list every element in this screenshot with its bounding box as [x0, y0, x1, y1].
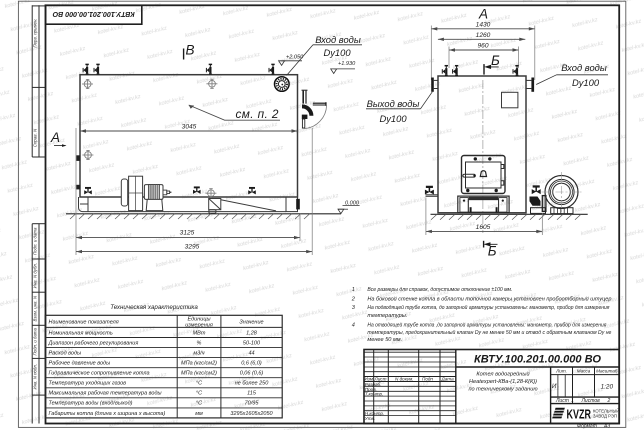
svg-text:В: В: [186, 43, 195, 58]
svg-text:Габариты котла (длина х ширина: Габариты котла (длина х ширина х высота): [49, 411, 166, 417]
svg-text:Перв. примен.: Перв. примен.: [32, 18, 37, 47]
svg-text:3295: 3295: [185, 243, 200, 250]
svg-text:KVZR: KVZR: [567, 407, 592, 421]
svg-text:°С: °С: [196, 401, 202, 407]
svg-text:Heatexpert-КВа-(1,28-К(К)): Heatexpert-КВа-(1,28-К(К)): [469, 379, 537, 385]
svg-text:Б: Б: [488, 244, 497, 259]
svg-text:Гидравлическое сопротивление к: Гидравлическое сопротивление котла: [49, 371, 150, 377]
svg-text:Максимальная рабочая температу: Максимальная рабочая температура воды: [49, 391, 162, 397]
svg-text:+2.050: +2.050: [286, 55, 304, 61]
svg-text:°С: °С: [196, 381, 202, 387]
svg-text:по техническому заданию: по техническому заданию: [468, 387, 538, 393]
svg-text:0,06 (0,6): 0,06 (0,6): [240, 371, 264, 377]
svg-text:Инв. N дубл.: Инв. N дубл.: [32, 263, 37, 288]
svg-text:+1.930: +1.930: [338, 61, 356, 67]
svg-text:Вход воды: Вход воды: [561, 62, 607, 73]
svg-text:Температура воды (вход/выход): Температура воды (вход/выход): [49, 401, 133, 407]
svg-text:Dy100: Dy100: [572, 77, 600, 88]
svg-text:температуры.: температуры.: [367, 313, 407, 319]
svg-text:Формат: Формат: [577, 423, 597, 429]
svg-text:КВТУ.100.201.00.000 ВО: КВТУ.100.201.00.000 ВО: [474, 353, 601, 365]
svg-text:Т.контр.: Т.контр.: [365, 392, 384, 397]
svg-text:Наименование показателя: Наименование показателя: [49, 320, 119, 326]
svg-text:115: 115: [247, 391, 257, 397]
svg-text:Рабочее давление воды: Рабочее давление воды: [49, 361, 111, 367]
svg-text:1:20: 1:20: [601, 383, 614, 390]
svg-text:Номинальная мощность: Номинальная мощность: [49, 330, 113, 336]
svg-text:Выход воды: Выход воды: [367, 98, 420, 109]
svg-text:Подп: Подп: [422, 377, 433, 382]
svg-text:1: 1: [352, 287, 355, 293]
svg-text:3045: 3045: [182, 123, 197, 130]
svg-text:И: И: [552, 383, 557, 390]
svg-text:Диапазон рабочего регулировани: Диапазон рабочего регулирования: [48, 340, 139, 346]
svg-text:На подводящей трубе котла, до: На подводящей трубе котла, до запорной а…: [367, 304, 609, 311]
svg-text:Листов: Листов: [581, 398, 601, 404]
svg-text:44: 44: [248, 350, 254, 356]
svg-text:3125: 3125: [180, 230, 195, 237]
svg-text:Масштаб: Масштаб: [596, 369, 618, 374]
svg-text:2: 2: [607, 398, 611, 404]
svg-text:Температура уходящих газов: Температура уходящих газов: [49, 381, 127, 387]
svg-text:N докум.: N докум.: [395, 377, 414, 382]
svg-text:Лист: Лист: [555, 398, 569, 404]
svg-text:А: А: [50, 130, 60, 145]
svg-text:мм: мм: [195, 411, 203, 417]
svg-text:Б: Б: [491, 53, 500, 68]
svg-text:температуры, предохранительный: температуры, предохранительный клапан Dу…: [367, 329, 611, 336]
svg-text:м3/ч: м3/ч: [193, 350, 204, 356]
svg-text:измерения: измерения: [185, 322, 213, 328]
svg-text:Все размеры для справок, допус: Все размеры для справок, допустимое откл…: [367, 287, 512, 293]
svg-text:Котел водогрейный: Котел водогрейный: [476, 371, 529, 378]
svg-text:менее 50 мм.: менее 50 мм.: [367, 337, 402, 343]
svg-text:ЗАВОД РЭП: ЗАВОД РЭП: [593, 414, 617, 419]
svg-text:50-100: 50-100: [243, 340, 261, 346]
svg-text:Подп. и дата: Подп. и дата: [32, 227, 37, 255]
svg-text:Техническая характеристика: Техническая характеристика: [110, 304, 198, 311]
svg-text:МПа (кгс/см2): МПа (кгс/см2): [181, 371, 217, 377]
svg-text:см. п. 2: см. п. 2: [236, 107, 279, 121]
svg-text:Взам. инв. N: Взам. инв. N: [32, 295, 37, 321]
svg-text:1: 1: [571, 398, 574, 404]
svg-text:°С: °С: [196, 391, 202, 397]
svg-text:0.000: 0.000: [345, 200, 360, 206]
svg-text:МВт: МВт: [193, 330, 206, 336]
svg-text:не более 250: не более 250: [235, 381, 270, 387]
svg-text:Значение: Значение: [239, 320, 263, 326]
svg-text:3295х1605х2050: 3295х1605х2050: [230, 411, 273, 417]
svg-text:0,6 (6,0): 0,6 (6,0): [241, 361, 262, 367]
svg-text:Инв. N подл.: Инв. N подл.: [32, 364, 37, 390]
svg-text:Дата: Дата: [441, 377, 455, 382]
svg-text:4: 4: [352, 323, 355, 329]
svg-text:1,28: 1,28: [246, 330, 258, 336]
svg-text:1605: 1605: [476, 224, 491, 231]
svg-text:960: 960: [477, 43, 488, 50]
svg-text:КВТУ.100.201.00.000 ВО: КВТУ.100.201.00.000 ВО: [52, 10, 134, 19]
svg-text:Справ. N: Справ. N: [32, 128, 37, 147]
svg-text:Утв.: Утв.: [365, 416, 375, 421]
svg-text:Подп. и дата: Подп. и дата: [32, 328, 37, 356]
svg-text:70/95: 70/95: [245, 401, 260, 407]
svg-text:На отводящей трубе котла ,до з: На отводящей трубе котла ,до запорной ар…: [367, 322, 606, 329]
svg-text:1430: 1430: [476, 21, 491, 28]
svg-text:Вход воды: Вход воды: [315, 34, 361, 45]
svg-text:На боковой стенке котла в обла: На боковой стенке котла в области топочн…: [367, 296, 611, 303]
svg-text:Dy100: Dy100: [323, 47, 351, 58]
svg-text:А: А: [478, 6, 488, 21]
svg-text:Лит.: Лит.: [555, 369, 567, 374]
svg-text:Масса: Масса: [577, 369, 591, 374]
svg-text:Dy100: Dy100: [379, 113, 407, 124]
svg-text:МПа (кгс/см2): МПа (кгс/см2): [181, 361, 217, 367]
svg-text:%: %: [197, 340, 202, 346]
svg-text:А3: А3: [603, 423, 610, 429]
svg-text:Расход воды: Расход воды: [49, 350, 82, 356]
svg-text:1260: 1260: [476, 32, 491, 39]
